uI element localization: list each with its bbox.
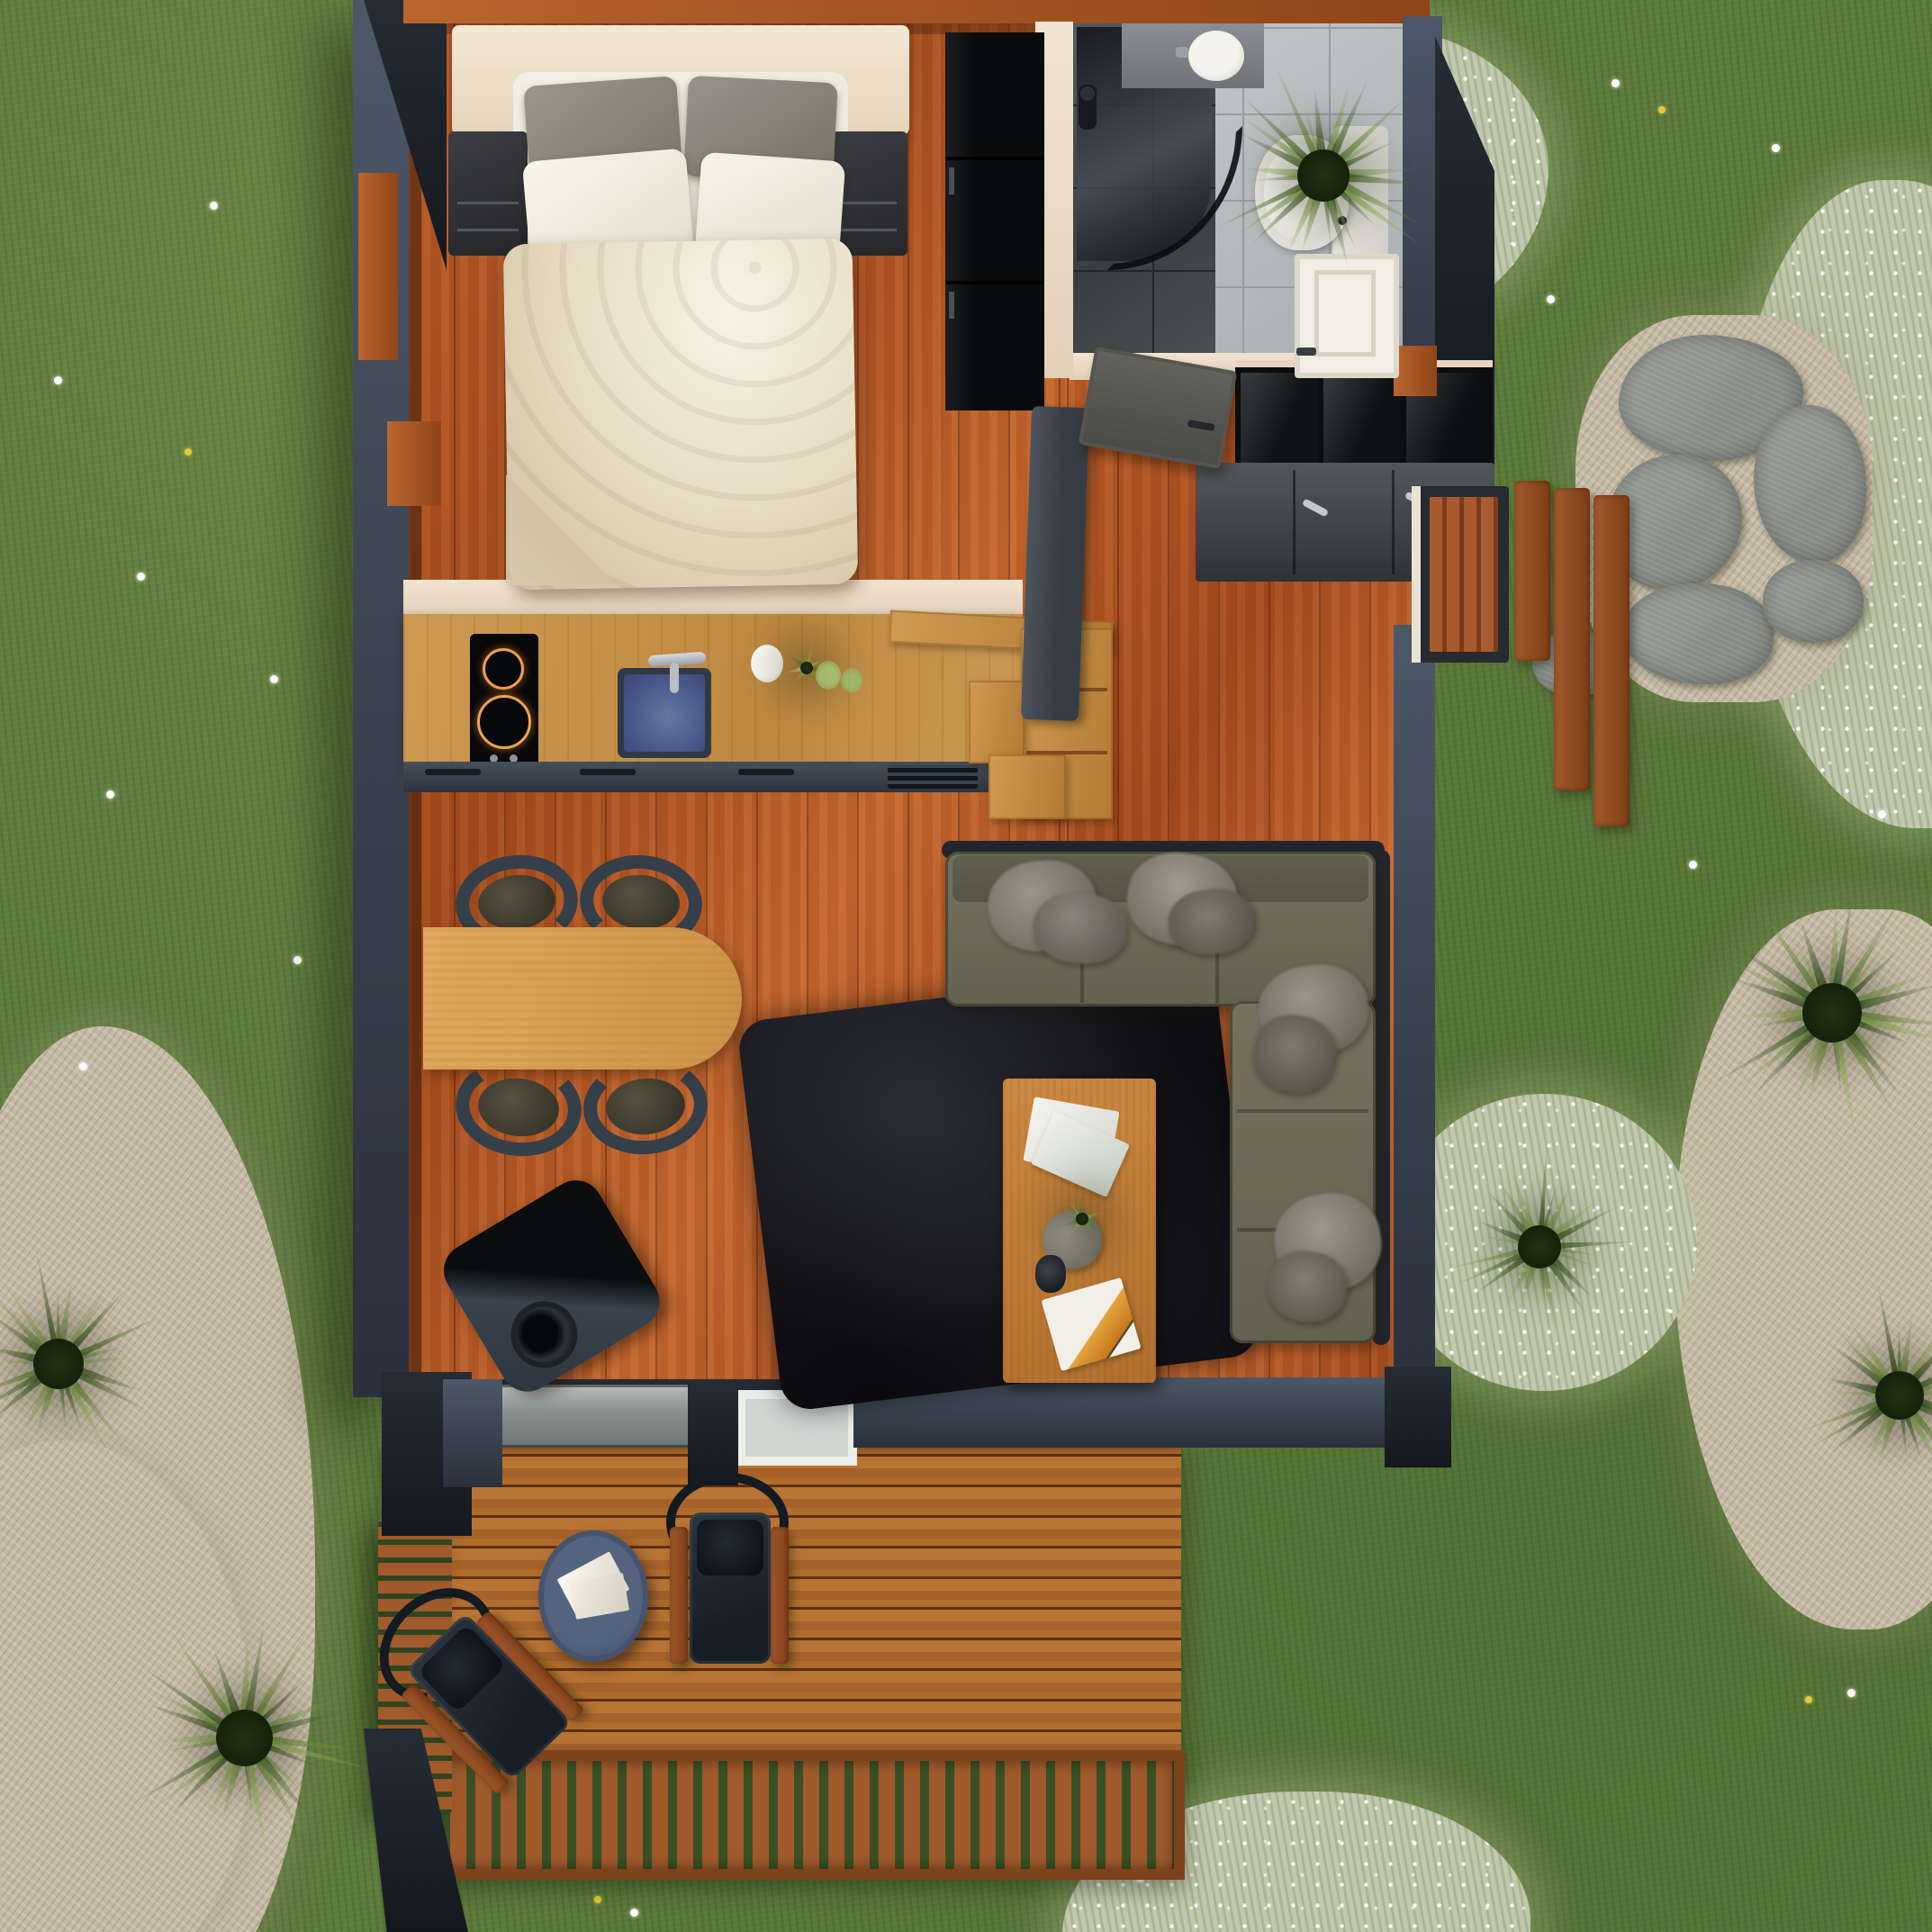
dandelion [594, 1896, 601, 1903]
oven-vent [888, 765, 978, 789]
chair-rail [670, 1527, 688, 1664]
dandelion [185, 448, 192, 456]
small-vase [1035, 1255, 1066, 1293]
flagstone [1763, 560, 1864, 643]
kitchen-cooktop [470, 634, 538, 767]
deck-book [570, 1573, 629, 1620]
sink-faucet-spout [670, 663, 679, 693]
west-window-sill [387, 421, 441, 506]
dandelion [1658, 106, 1666, 113]
sliding-door-stub-left-2 [443, 1379, 502, 1487]
wardrobe-divider [945, 157, 1044, 160]
daisy [293, 956, 302, 964]
cubby-cell [1241, 373, 1318, 463]
daisy [210, 202, 218, 210]
cubby-cell [1323, 373, 1401, 463]
tiny-house-floor-plan-render [0, 0, 1932, 1932]
daisy [1612, 79, 1620, 87]
yucca-plant [1179, 32, 1467, 320]
wardrobe-divider [945, 281, 1044, 284]
daisy [270, 675, 278, 683]
daisy [1878, 810, 1886, 818]
kitchen-sink [618, 668, 711, 758]
bedroom-door-open [1021, 406, 1089, 721]
entry-door-jamb [1412, 486, 1421, 663]
yucca-plant [1666, 846, 1932, 1179]
wall-north-fascia [403, 0, 1430, 23]
nightstand [448, 131, 528, 256]
kitchen-glass [816, 661, 841, 690]
daisy [1547, 295, 1555, 303]
entry-post [1394, 346, 1437, 396]
burner-large [477, 695, 531, 749]
drawer-line [457, 229, 519, 231]
wardrobe [945, 32, 1044, 411]
entry-step [1514, 481, 1550, 661]
daisy [1772, 144, 1780, 152]
cabinet-handle-slot [580, 769, 636, 775]
drawer-line [832, 229, 897, 231]
kitchen-shelf-step [969, 681, 1025, 763]
daisy [106, 790, 114, 799]
dandelion [1805, 1696, 1812, 1703]
cabinet-seam [1293, 470, 1296, 574]
yucca-plant [86, 1580, 402, 1895]
yucca-plant [1418, 1125, 1661, 1368]
daisy [630, 1909, 638, 1917]
door-handle [1187, 420, 1215, 431]
sink-basin [624, 674, 705, 752]
daisy [137, 573, 145, 581]
deck-lounge-chair [666, 1476, 792, 1667]
daisy [79, 1062, 87, 1070]
entry-door-wood-slats [1430, 497, 1498, 652]
sofa-seat-seam [1237, 1109, 1368, 1113]
west-window-trim [358, 173, 398, 360]
plant-core [1076, 1213, 1088, 1225]
yucca-plant [0, 1224, 198, 1503]
cabinet-handle-slot [738, 769, 794, 775]
cabinet-handle-slot [425, 769, 481, 775]
shower-head-face [1080, 86, 1095, 101]
wall-south-corner-post [1385, 1367, 1451, 1467]
daisy [54, 376, 62, 384]
yucca-plant [1765, 1260, 1932, 1530]
kitchen-glass [841, 668, 862, 693]
plant-core [216, 1710, 273, 1766]
cabinet-handle [1302, 498, 1329, 517]
cabinet-seam [1392, 470, 1395, 574]
shower-head [1079, 85, 1097, 130]
entry-cubby-unit [1235, 367, 1493, 468]
plant-core [1875, 1371, 1924, 1420]
succulent-plant [1048, 1185, 1116, 1253]
drawer-line [457, 202, 519, 204]
kitchen-base-cabinets [403, 762, 1023, 792]
entry-door [1419, 486, 1509, 663]
deck-side-table [538, 1530, 648, 1662]
wardrobe-handle [949, 292, 954, 319]
plant-core [1297, 149, 1350, 202]
plant-core [1802, 983, 1863, 1043]
kitchen-shelf-step [989, 754, 1066, 819]
chair-rail [771, 1527, 789, 1664]
coffee-table [1003, 1079, 1156, 1383]
sliding-door-mid-post [688, 1379, 738, 1485]
dining-table [423, 927, 742, 1070]
daisy [1847, 1689, 1855, 1697]
rug [736, 964, 1260, 1413]
plant-core [33, 1339, 84, 1389]
entry-step [1554, 488, 1590, 790]
entry-step [1593, 495, 1630, 826]
wardrobe-handle [949, 167, 954, 194]
chair-cushion [697, 1520, 763, 1575]
burner-small [483, 648, 524, 690]
door-handle [1296, 348, 1316, 356]
